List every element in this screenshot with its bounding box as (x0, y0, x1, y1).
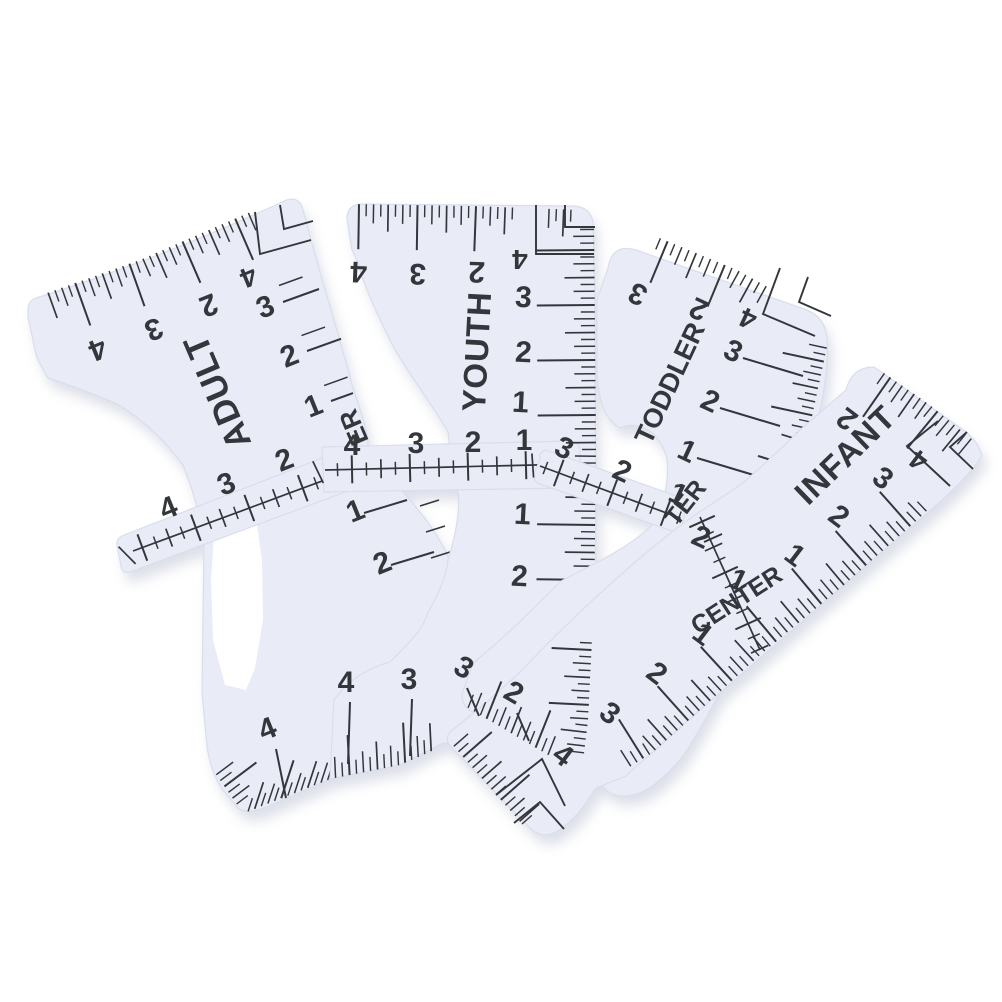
svg-text:1: 1 (511, 386, 529, 420)
svg-text:2: 2 (468, 255, 486, 289)
svg-text:1: 1 (513, 498, 531, 532)
svg-text:3: 3 (514, 281, 532, 315)
svg-text:3: 3 (408, 427, 425, 460)
svg-text:2: 2 (514, 336, 532, 370)
svg-text:4: 4 (338, 666, 355, 699)
svg-text:2: 2 (510, 560, 528, 594)
svg-text:4: 4 (344, 429, 361, 462)
svg-text:1: 1 (516, 424, 533, 457)
svg-text:4: 4 (349, 255, 367, 289)
svg-text:3: 3 (401, 663, 418, 696)
svg-text:4: 4 (512, 244, 528, 275)
svg-text:2: 2 (465, 426, 482, 459)
svg-text:3: 3 (409, 257, 427, 291)
svg-text:YOUTH: YOUTH (455, 290, 498, 412)
